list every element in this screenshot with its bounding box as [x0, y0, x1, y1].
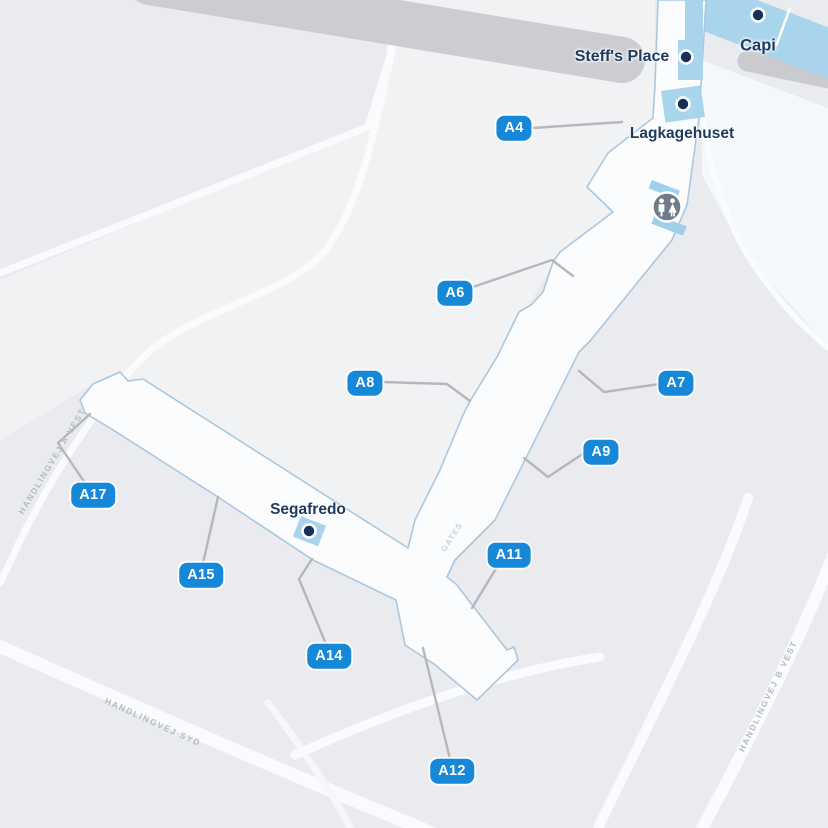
- gate-chip-a8[interactable]: A8: [347, 371, 382, 396]
- poi-dot-capi[interactable]: [752, 9, 765, 22]
- poi-dot-steffs-place[interactable]: [680, 51, 693, 64]
- poi-dot-lagkagehuset[interactable]: [677, 98, 690, 111]
- gate-chip-a14[interactable]: A14: [307, 644, 351, 669]
- gate-chip-a9[interactable]: A9: [583, 440, 618, 465]
- airport-map[interactable]: A4 A6 A7 A8 A9 A11 A12 A14 A15 A17 Steff…: [0, 0, 828, 828]
- gate-chip-a17[interactable]: A17: [71, 483, 115, 508]
- poi-label-lagkagehuset[interactable]: Lagkagehuset: [630, 125, 734, 143]
- poi-label-steffs-place[interactable]: Steff's Place: [575, 48, 670, 66]
- gate-chip-a4[interactable]: A4: [496, 116, 531, 141]
- gate-chip-a11[interactable]: A11: [488, 543, 531, 568]
- gate-chip-a7[interactable]: A7: [658, 371, 693, 396]
- gate-chip-a15[interactable]: A15: [179, 563, 223, 588]
- gate-chip-a6[interactable]: A6: [437, 281, 472, 306]
- gate-chip-a12[interactable]: A12: [430, 759, 474, 784]
- restroom-icon[interactable]: [653, 193, 682, 222]
- poi-label-segafredo[interactable]: Segafredo: [270, 501, 346, 519]
- poi-label-capi[interactable]: Capi: [740, 37, 776, 56]
- poi-dot-segafredo[interactable]: [303, 525, 316, 538]
